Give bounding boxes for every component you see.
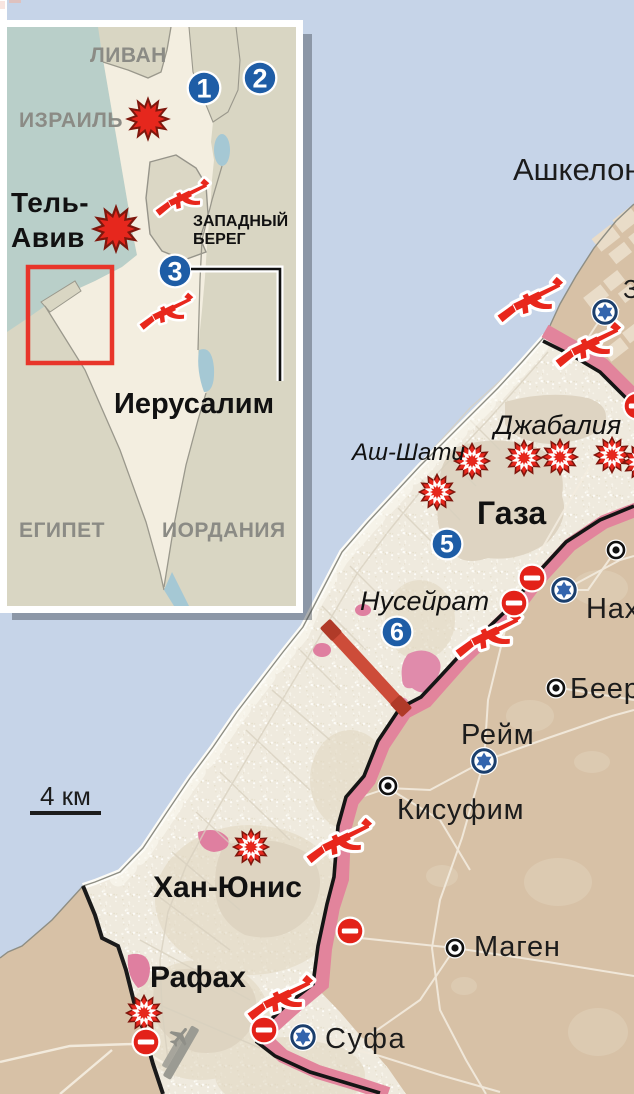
svg-text:Ашкелон: Ашкелон (513, 152, 634, 187)
svg-text:Газа: Газа (477, 495, 546, 531)
svg-text:Беери: Беери (570, 673, 634, 705)
svg-text:Авив: Авив (11, 222, 85, 253)
svg-text:Рейм: Рейм (461, 719, 535, 751)
svg-text:Суфа: Суфа (325, 1023, 406, 1055)
svg-text:Иерусалим: Иерусалим (114, 388, 274, 420)
svg-text:Тель-: Тель- (11, 187, 89, 218)
svg-text:Рафах: Рафах (150, 961, 246, 994)
svg-text:3: 3 (167, 257, 182, 287)
svg-text:ЕГИПЕТ: ЕГИПЕТ (19, 519, 105, 542)
svg-text:Нахаль-Оз: Нахаль-Оз (586, 593, 634, 625)
svg-text:6: 6 (390, 619, 404, 647)
svg-text:5: 5 (440, 531, 454, 559)
svg-text:Джабалия: Джабалия (491, 410, 621, 440)
svg-text:2: 2 (252, 64, 267, 94)
svg-text:ЛИВАН: ЛИВАН (90, 44, 167, 67)
svg-text:ИОРДАНИЯ: ИОРДАНИЯ (162, 519, 286, 542)
svg-text:Маген: Маген (474, 931, 561, 963)
svg-text:ИЗРАИЛЬ: ИЗРАИЛЬ (19, 109, 123, 132)
svg-text:Аш-Шати: Аш-Шати (350, 439, 465, 466)
svg-text:4 км: 4 км (40, 781, 91, 811)
svg-text:Зиким: Зиким (623, 274, 634, 304)
svg-text:Хан-Юнис: Хан-Юнис (153, 871, 302, 904)
svg-text:ЗАПАДНЫЙ: ЗАПАДНЫЙ (193, 211, 288, 230)
svg-text:Кисуфим: Кисуфим (397, 794, 524, 826)
svg-text:БЕРЕГ: БЕРЕГ (193, 231, 246, 248)
svg-text:1: 1 (196, 74, 211, 104)
svg-text:Нусейрат: Нусейрат (360, 586, 489, 616)
